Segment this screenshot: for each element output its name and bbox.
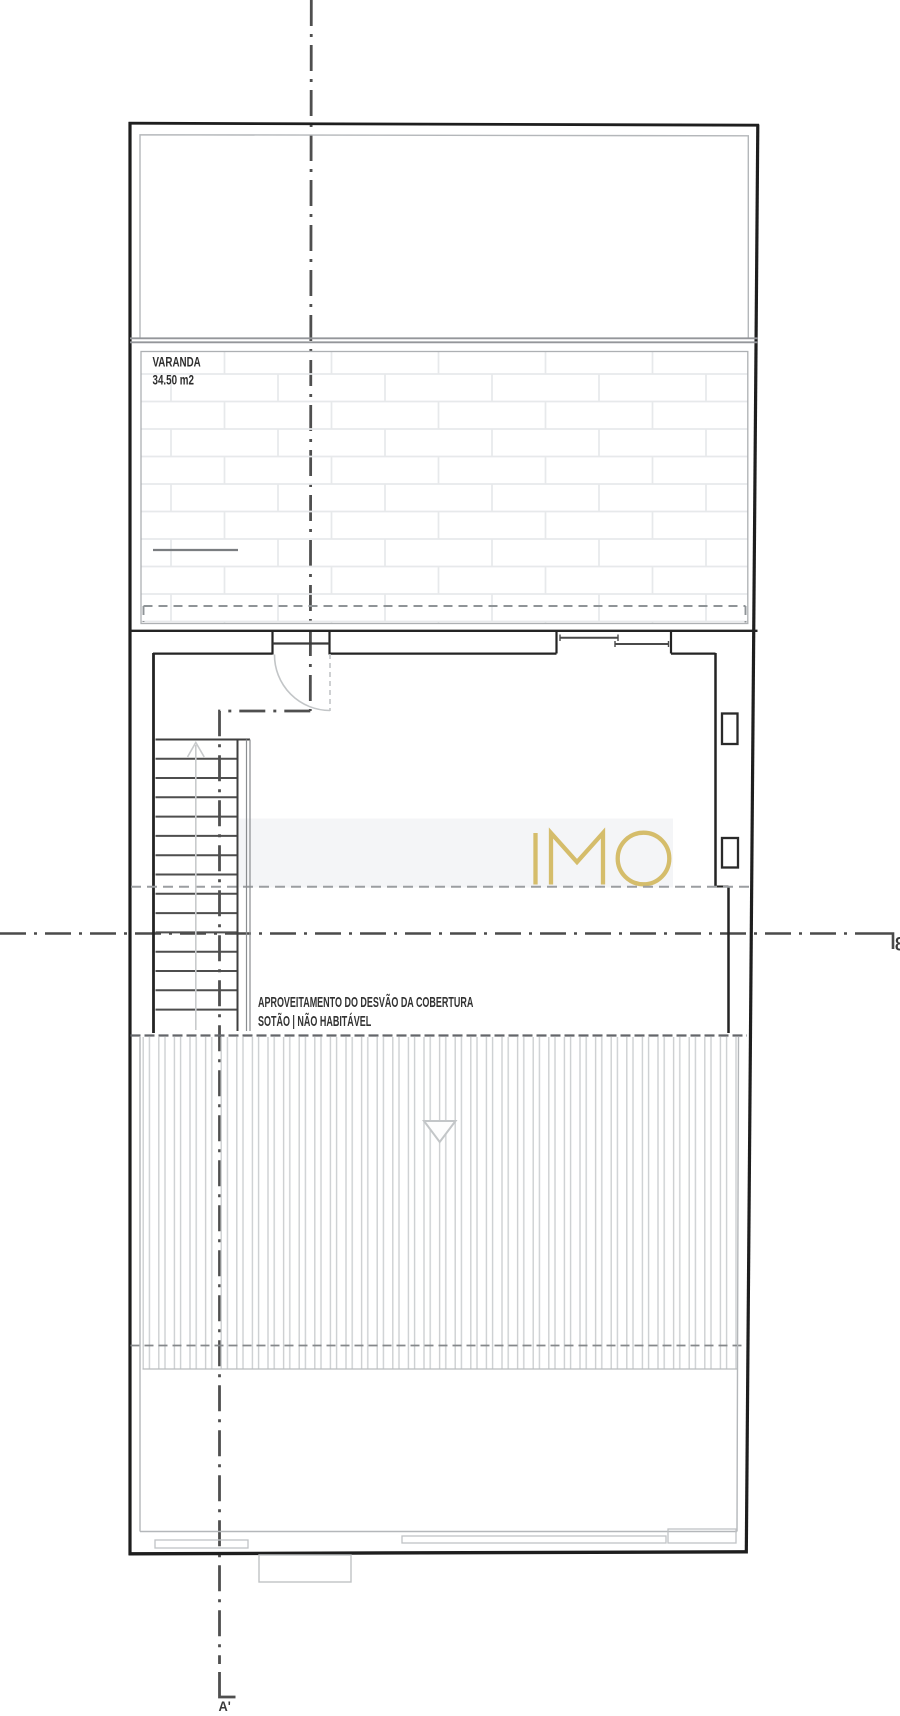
- svg-text:VARANDA: VARANDA: [153, 354, 201, 370]
- svg-text:8: 8: [895, 933, 900, 955]
- svg-text:APROVEITAMENTO DO DESVÃO DA CO: APROVEITAMENTO DO DESVÃO DA COBERTURA: [258, 993, 474, 1011]
- svg-text:34.50 m2: 34.50 m2: [153, 372, 195, 388]
- svg-text:A': A': [219, 1699, 231, 1714]
- svg-text:SOTÃO | NÃO HABITÁVEL: SOTÃO | NÃO HABITÁVEL: [258, 1012, 371, 1030]
